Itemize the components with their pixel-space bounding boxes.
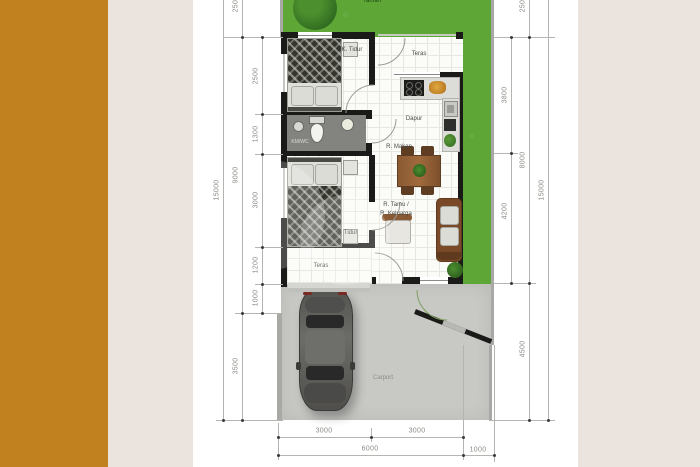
extension-line (255, 247, 283, 248)
dimension-marker (261, 283, 264, 286)
dimension-marker (510, 282, 513, 285)
dimension-marker (510, 36, 513, 39)
dimension-marker (462, 436, 465, 439)
dim-label: 1200 (253, 257, 260, 274)
dimension-marker (241, 419, 244, 422)
dim-label: 6000 (362, 446, 379, 453)
dimension-marker (261, 36, 264, 39)
dimension-line (262, 37, 263, 313)
dim-label: 2500 (253, 68, 260, 85)
dimension-line (223, 0, 224, 420)
dimension-marker (510, 152, 513, 155)
dim-label: 9000 (233, 167, 240, 184)
bedroom1-label: K. Tidur (342, 47, 363, 53)
extension-line (489, 420, 555, 421)
dim-label: 3500 (233, 358, 240, 375)
dimension-marker (241, 36, 244, 39)
extension-line (371, 428, 372, 442)
dim-label: 3000 (316, 428, 333, 435)
extension-line (255, 284, 283, 285)
extension-line (494, 345, 495, 462)
kitchen-label: Dapur (406, 116, 422, 122)
watermark (300, 195, 390, 285)
extension-line (463, 345, 464, 460)
living-label-line2: R. Keluarga (380, 211, 412, 217)
dimension-line (548, 0, 549, 420)
dimension-marker (528, 282, 531, 285)
dim-label: 1000 (470, 447, 487, 454)
dimension-marker (261, 113, 264, 116)
dimension-marker (370, 436, 373, 439)
dimension-line (529, 0, 530, 420)
dimension-marker (261, 246, 264, 249)
dim-label: 2500 (520, 0, 527, 12)
extension-line (494, 37, 555, 38)
dimension-marker (528, 419, 531, 422)
dimension-marker (462, 454, 465, 457)
dim-label: 3000 (253, 192, 260, 209)
extension-line (223, 37, 283, 38)
dim-label: 2500 (233, 0, 240, 12)
terrace-top-label: Teras (412, 51, 427, 57)
dimension-marker (547, 419, 550, 422)
extension-line (494, 153, 518, 154)
dimension-marker (261, 312, 264, 315)
dimension-marker (277, 436, 280, 439)
dim-label: 3800 (502, 87, 509, 104)
dimension-line (511, 37, 512, 283)
dimension-marker (493, 454, 496, 457)
extension-line (255, 154, 283, 155)
extension-line (216, 420, 283, 421)
dim-label: 1300 (253, 126, 260, 143)
dim-label: 3000 (409, 428, 426, 435)
dimension-marker (241, 312, 244, 315)
floor-plan-page: Taman Carport (0, 0, 700, 467)
dimension-line (242, 0, 243, 420)
living-label-line1: R. Tamu / (383, 202, 409, 208)
dim-label: 15000 (539, 180, 546, 201)
dim-label: 4200 (502, 203, 509, 220)
dimension-marker (277, 454, 280, 457)
dimension-marker (261, 153, 264, 156)
dim-label: 1000 (253, 290, 260, 307)
dimension-marker (528, 36, 531, 39)
dim-label: 4500 (520, 341, 527, 358)
extension-line (255, 114, 283, 115)
dim-label: 15000 (214, 180, 221, 201)
dimension-marker (222, 419, 225, 422)
dim-label: 8000 (520, 152, 527, 169)
dining-label: R. Makan (386, 144, 412, 150)
